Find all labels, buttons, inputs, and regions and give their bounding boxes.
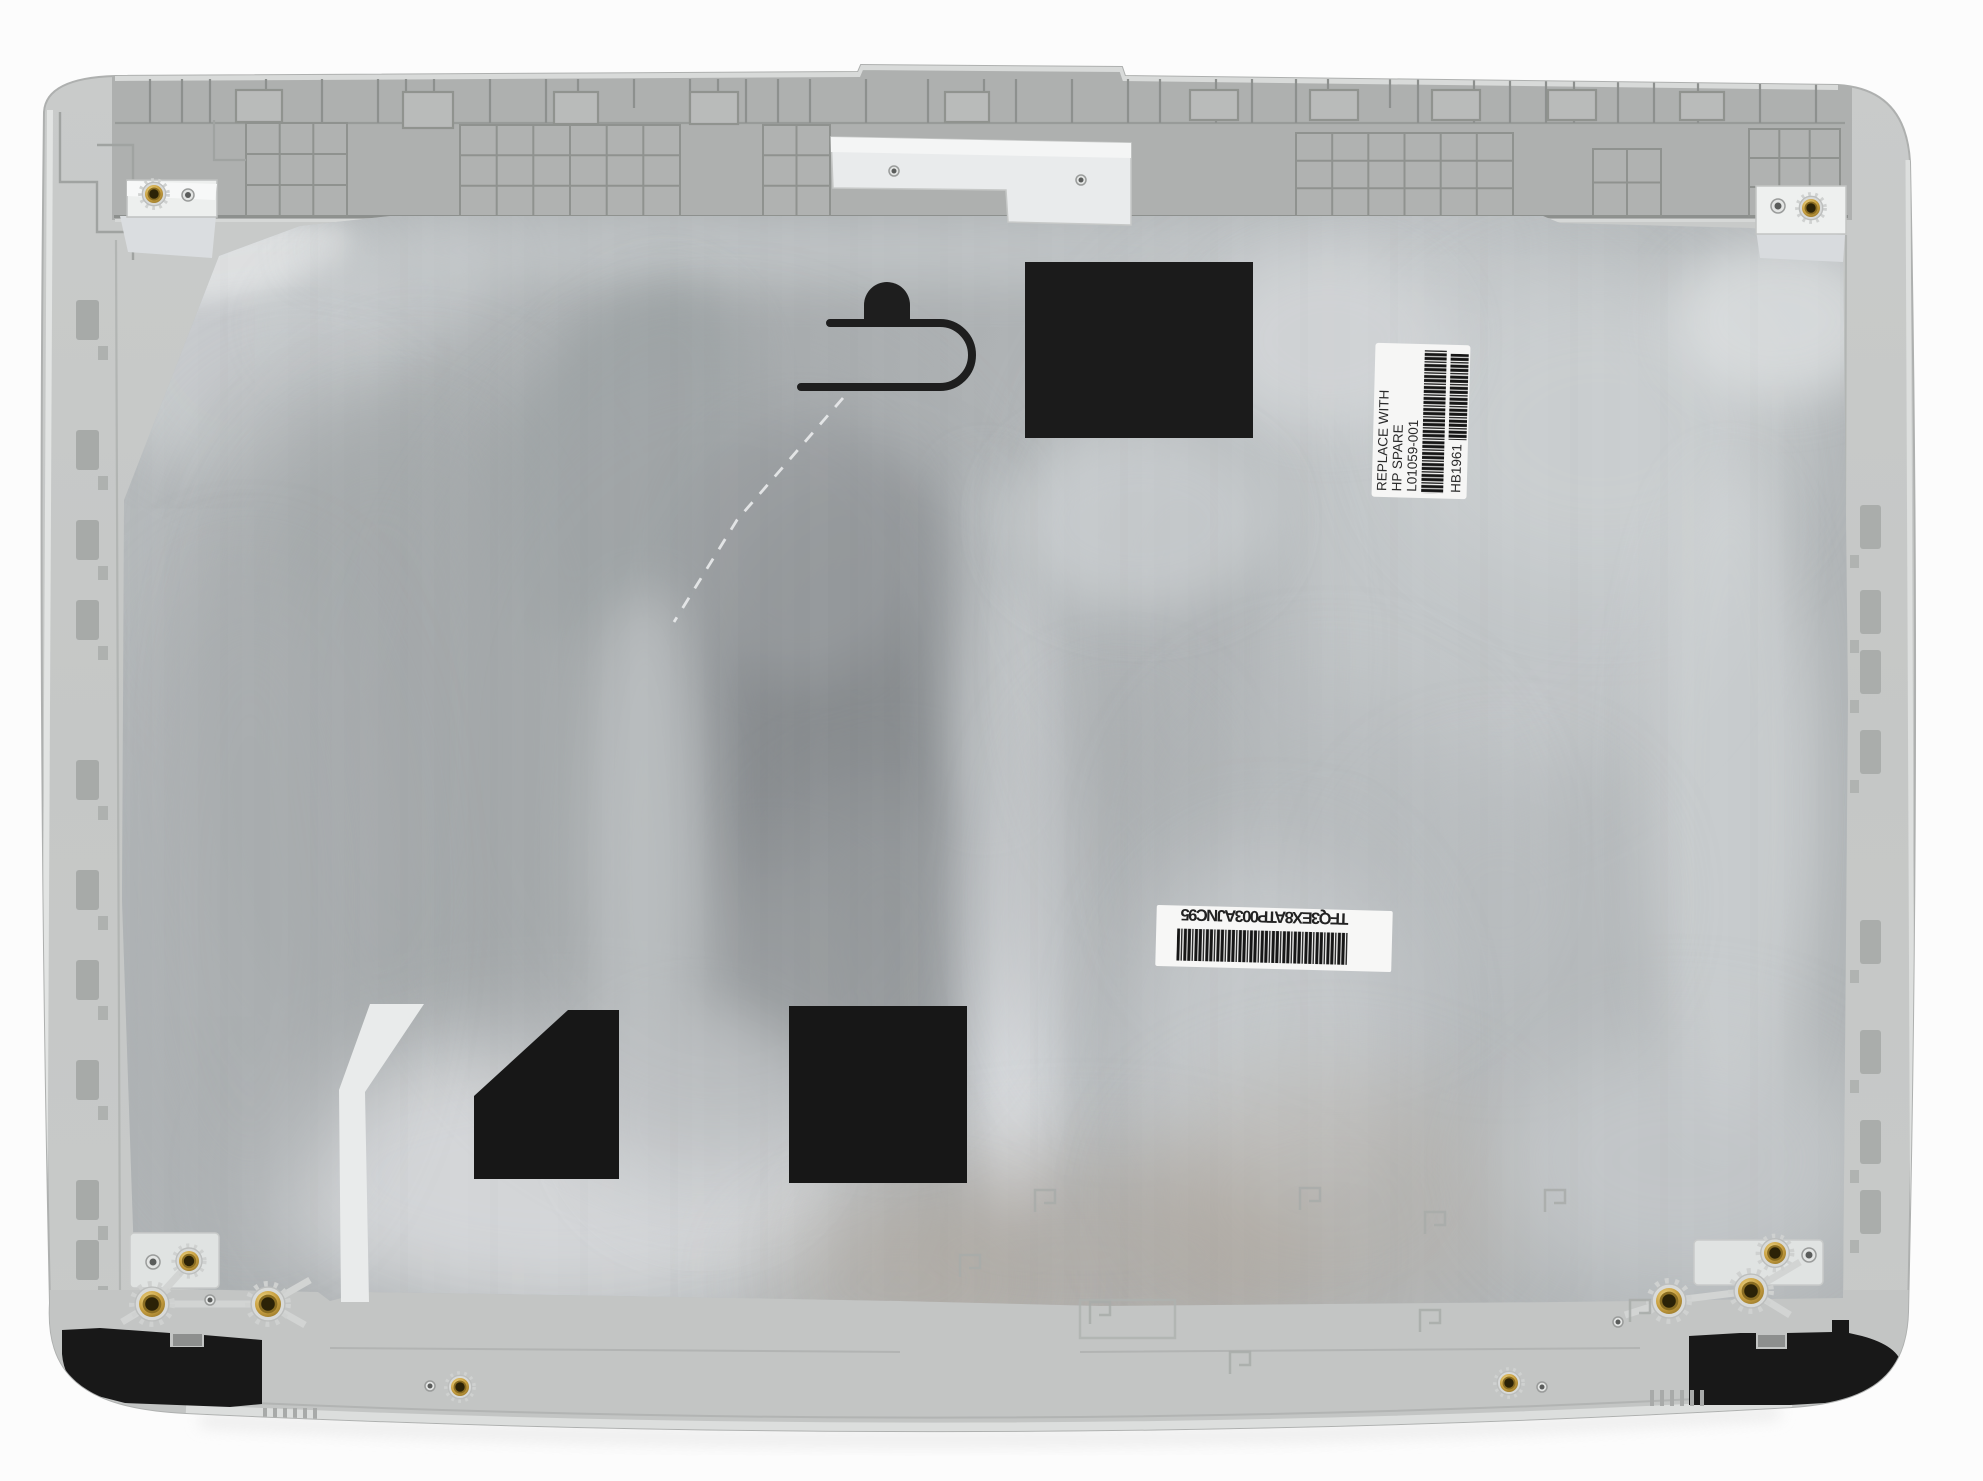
svg-text:L01059-001: L01059-001	[1404, 420, 1421, 492]
svg-text:HB1961: HB1961	[1448, 444, 1464, 493]
svg-text:HP SPARE: HP SPARE	[1389, 424, 1406, 491]
